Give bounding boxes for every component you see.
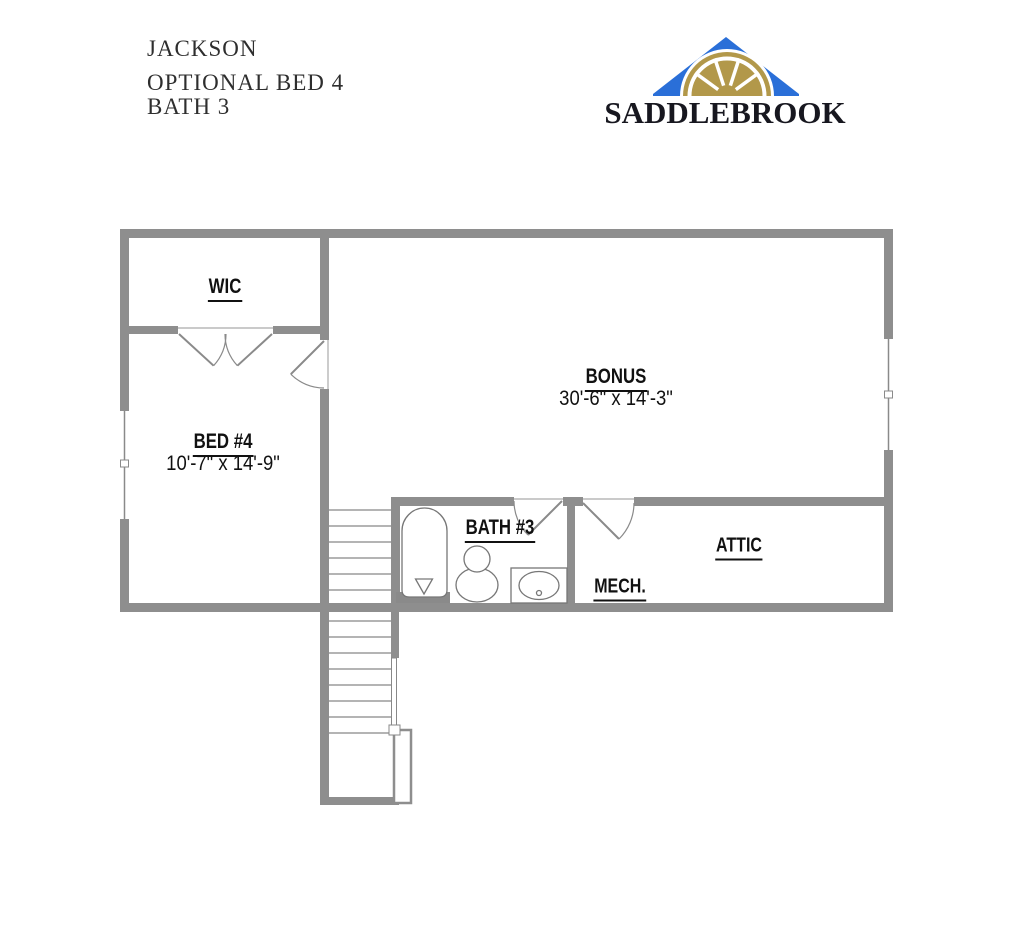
room-label-bed4: BED #4 [193, 430, 253, 454]
door-wic-double [179, 334, 272, 366]
door-attic [583, 503, 634, 539]
toilet [456, 546, 498, 602]
room-label-mech: MECH. [593, 576, 646, 599]
room-label-attic: ATTIC [715, 535, 763, 558]
window-right [885, 339, 893, 450]
door-bed4 [291, 341, 324, 388]
room-label-bath3: BATH #3 [465, 516, 535, 540]
bathtub [402, 508, 447, 597]
stair-newel-post [389, 725, 400, 735]
room-label-bonus: BONUS [585, 365, 647, 389]
floor-plan-sheet: JACKSON OPTIONAL BED 4 BATH 3 SADDLEBROO… [0, 0, 1024, 936]
window-left [121, 411, 129, 519]
plan-linework [0, 0, 1024, 936]
room-label-wic: WIC [208, 275, 242, 299]
understair-wall [394, 730, 411, 803]
sink-vanity [511, 568, 567, 603]
room-dims-bed4: 10'-7" x 14'-9" [166, 452, 280, 476]
staircase [329, 510, 391, 733]
stair-railing [392, 658, 397, 728]
room-dims-bonus: 30'-6" x 14'-3" [559, 387, 673, 411]
